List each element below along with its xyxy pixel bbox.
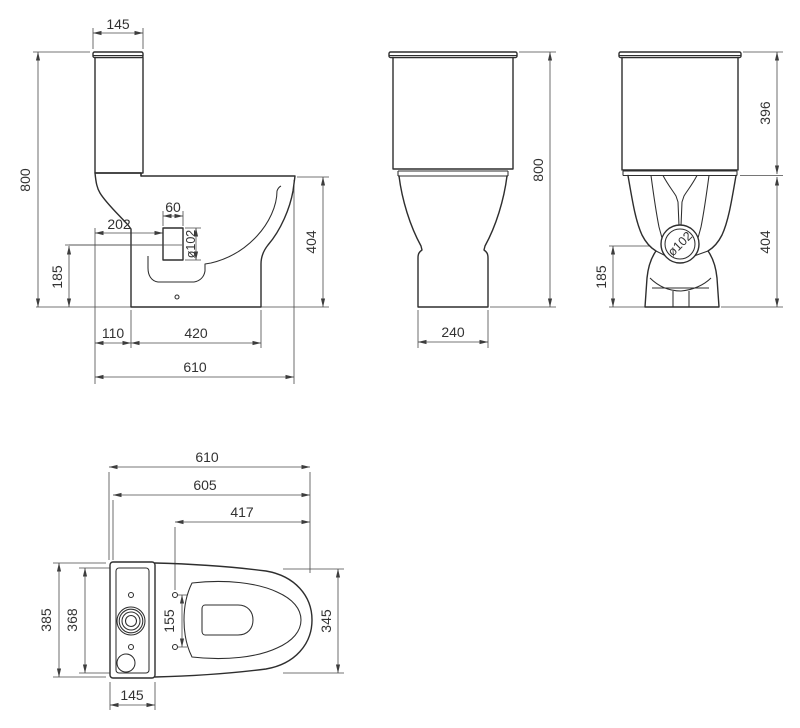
dim-label-top-cistern-depth: 145 — [120, 687, 144, 703]
top-hinge-hole-upper — [173, 593, 178, 598]
dim-label-side-foot-length: 420 — [184, 325, 208, 341]
side-extension-lines — [33, 28, 329, 384]
technical-drawing-page: 145 800 60 202 ø102 185 404 110 420 610 … — [0, 0, 800, 728]
top-hinge-hole-lower — [173, 645, 178, 650]
front-extension-lines — [418, 52, 556, 348]
dim-label-top-total-depth: 610 — [195, 449, 219, 465]
side-outlet-stub — [163, 228, 183, 260]
dim-label-top-bowl-width: 345 — [318, 609, 334, 633]
dim-label-top-cistern-inner-width: 368 — [64, 608, 80, 632]
dim-label-top-hinge-spacing: 155 — [161, 609, 177, 633]
dim-label-side-outlet-stub-width: 60 — [165, 199, 181, 215]
dim-label-side-total-depth: 610 — [183, 359, 207, 375]
dim-label-side-total-height: 800 — [17, 168, 33, 192]
front-bowl-outline — [399, 176, 507, 307]
rear-cistern-body — [622, 58, 738, 171]
toilet-dimension-drawing: 145 800 60 202 ø102 185 404 110 420 610 … — [0, 0, 800, 728]
top-view: 610 605 417 385 368 155 345 145 — [38, 449, 344, 710]
dim-label-side-outlet-setback: 202 — [107, 216, 131, 232]
rear-joint-band — [623, 171, 737, 176]
dim-label-side-bowl-height: 404 — [303, 230, 319, 254]
dim-label-front-base-width: 240 — [441, 324, 465, 340]
dim-label-top-cistern-width: 385 — [38, 608, 54, 632]
front-view: 240 800 — [389, 52, 556, 348]
side-fixing-hole — [175, 295, 179, 299]
dim-label-rear-cistern-height: 396 — [757, 101, 773, 125]
front-cistern-lid — [389, 52, 517, 58]
dim-label-side-outlet-diameter: ø102 — [184, 230, 198, 259]
dim-label-rear-bowl-height: 404 — [757, 230, 773, 254]
rear-view: 396 404 185 ø102 — [593, 52, 783, 307]
rear-inlet-funnel — [663, 176, 697, 227]
dim-label-side-cistern-depth: 145 — [106, 16, 130, 32]
side-cistern-body — [95, 58, 143, 177]
dim-label-rear-outlet-height: 185 — [593, 265, 609, 289]
dim-label-top-hinge-to-front: 417 — [230, 504, 254, 520]
top-lid-outline — [155, 563, 312, 677]
top-bowl-water-outline — [202, 605, 253, 635]
top-extension-lines — [53, 472, 344, 710]
dim-label-side-outlet-height: 185 — [49, 265, 65, 289]
rear-cistern-lid — [619, 52, 741, 58]
side-cistern-lid — [93, 52, 143, 58]
side-view: 145 800 60 202 ø102 185 404 110 420 610 — [17, 16, 329, 384]
rear-extension-lines — [609, 52, 783, 307]
dim-label-side-foot-offset: 110 — [102, 325, 125, 341]
front-joint-band — [398, 171, 508, 176]
dim-label-front-total-height: 800 — [530, 158, 546, 182]
dim-label-top-depth-no-lid: 605 — [193, 477, 217, 493]
front-cistern-body — [393, 58, 513, 170]
